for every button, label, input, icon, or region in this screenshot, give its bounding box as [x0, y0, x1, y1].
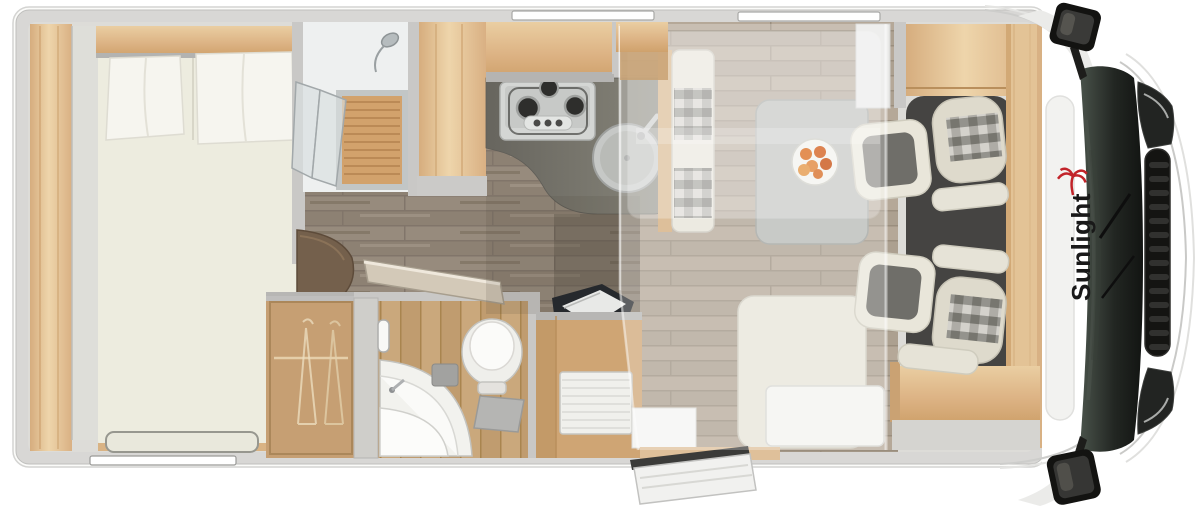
svg-text:Sunlight: Sunlight: [1066, 193, 1096, 301]
